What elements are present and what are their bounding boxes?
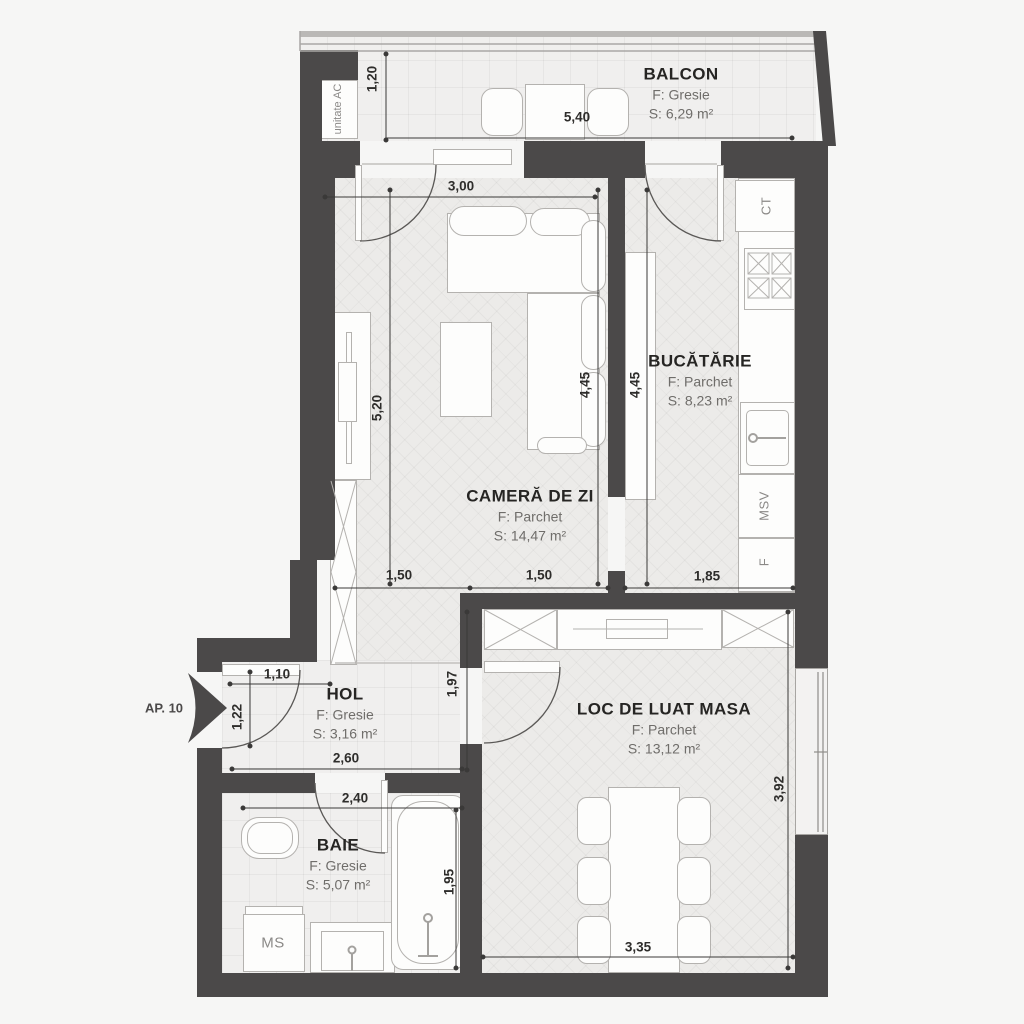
dining-chair xyxy=(677,916,711,964)
wall-hall-top xyxy=(197,638,317,662)
room-name: CAMERĂ DE ZI xyxy=(466,485,594,507)
living-balcony-door-leaf xyxy=(355,165,362,241)
room-label-bucatarie: BUCĂTĂRIE F: Parchet S: 8,23 m² xyxy=(648,350,752,409)
apartment-number-label: AP. 10 xyxy=(145,701,183,716)
room-area: S: 13,12 m² xyxy=(577,739,751,757)
room-floor-type: F: Gresie xyxy=(643,86,718,104)
dining-door-leaf xyxy=(484,661,560,673)
wall-dining-top xyxy=(460,593,828,609)
bath-door-leaf xyxy=(381,780,388,853)
wall-right-upper xyxy=(795,155,828,668)
dining-wardrobe-left xyxy=(484,609,557,650)
room-area: S: 8,23 m² xyxy=(648,391,752,409)
room-label-balcon: BALCON F: Gresie S: 6,29 m² xyxy=(643,63,718,122)
dim-living-width-top: 3,00 xyxy=(448,179,474,194)
dining-window xyxy=(795,668,828,835)
room-floor-type: F: Parchet xyxy=(577,721,751,739)
sofa-end-cushion xyxy=(537,437,587,454)
toilet-inner xyxy=(247,822,293,854)
wall-left-step xyxy=(290,560,317,640)
room-area: S: 14,47 m² xyxy=(466,526,594,544)
wall-balcony-left xyxy=(300,80,322,141)
dim-balcony-width: 5,40 xyxy=(564,110,590,125)
dim-living-height-right: 4,45 xyxy=(578,372,593,398)
wall-entry-jamb-top xyxy=(197,662,222,672)
balcony-chair-left xyxy=(481,88,523,136)
dim-hol-right: 1,97 xyxy=(445,671,460,697)
bath-sink-basin xyxy=(321,931,384,971)
room-name: BAIE xyxy=(306,834,371,856)
dim-bath-side: 1,95 xyxy=(442,869,457,895)
wall-balcony-ac xyxy=(300,50,358,80)
dining-chair xyxy=(677,857,711,905)
dim-kitchen-bottom: 1,85 xyxy=(694,569,720,584)
room-name: BUCĂTĂRIE xyxy=(648,350,752,372)
dim-dining-side: 3,92 xyxy=(772,776,787,802)
room-floor-type: F: Parchet xyxy=(466,508,594,526)
coffee-table xyxy=(440,322,492,417)
kitchen-sink-basin xyxy=(746,410,789,466)
dim-living-height: 5,20 xyxy=(370,395,385,421)
room-floor-type: F: Parchet xyxy=(648,373,752,391)
dim-kitchen-height: 4,45 xyxy=(628,372,643,398)
room-name: LOC DE LUAT MASA xyxy=(577,698,751,720)
room-label-loc-de-luat-masa: LOC DE LUAT MASA F: Parchet S: 13,12 m² xyxy=(577,698,751,757)
balcony-fixed-panel xyxy=(433,149,512,165)
washing-machine-top xyxy=(245,906,303,915)
tv-box xyxy=(338,362,357,422)
wall-right-lower xyxy=(795,835,828,973)
wall-entry-left-lower xyxy=(197,748,222,973)
sofa-side-cushion xyxy=(581,220,606,292)
dining-chair xyxy=(577,857,611,905)
sideboard-box xyxy=(606,619,668,639)
dim-entry-side: 1,22 xyxy=(230,704,245,730)
dining-chair xyxy=(577,916,611,964)
wall-living-kitchen xyxy=(608,178,625,497)
dim-hol-top: 1,10 xyxy=(264,667,290,682)
balcony-slanted-wall xyxy=(813,31,836,146)
dining-chair xyxy=(677,797,711,845)
floor-plan-canvas: BALCON F: Gresie S: 6,29 m² CAMERĂ DE ZI… xyxy=(0,0,1024,1024)
stove-box xyxy=(744,248,795,310)
kitchen-balcony-door-leaf xyxy=(717,165,724,241)
sofa-side-cushion xyxy=(581,295,606,370)
wall-bath-top-right xyxy=(385,773,462,793)
room-label-camera-de-zi: CAMERĂ DE ZI F: Parchet S: 14,47 m² xyxy=(466,485,594,544)
wall-hall-dining-upper xyxy=(460,593,482,668)
dim-living-bottom-a: 1,50 xyxy=(386,568,412,583)
dining-chair xyxy=(577,797,611,845)
washing-machine-label: MS xyxy=(261,935,285,952)
wall-top-middle xyxy=(524,141,645,178)
dim-bath-top: 2,40 xyxy=(342,791,368,806)
room-area: S: 6,29 m² xyxy=(643,104,718,122)
wall-left-living xyxy=(300,141,335,560)
room-label-hol: HOL F: Gresie S: 3,16 m² xyxy=(313,683,378,742)
wall-hall-dining-lower xyxy=(460,744,482,973)
room-floor-type: F: Gresie xyxy=(306,857,371,875)
wall-bath-top-left xyxy=(222,773,315,793)
dining-wardrobe-right xyxy=(722,609,794,648)
freezer-label: F xyxy=(757,558,772,566)
room-name: BALCON xyxy=(643,63,718,85)
room-floor-type: F: Gresie xyxy=(313,706,378,724)
room-name: HOL xyxy=(313,683,378,705)
msv-label: MSV xyxy=(757,491,772,521)
dim-living-bottom-b: 1,50 xyxy=(526,568,552,583)
balcony-chair-right xyxy=(587,88,629,136)
wall-bottom xyxy=(197,973,828,997)
boiler-ct-label: CT xyxy=(759,197,774,215)
room-label-baie: BAIE F: Gresie S: 5,07 m² xyxy=(306,834,371,893)
sofa-back-cushion xyxy=(449,206,527,236)
ac-unit-label: unitate AC xyxy=(332,83,346,135)
dim-hol-bottom: 2,60 xyxy=(333,751,359,766)
room-area: S: 5,07 m² xyxy=(306,875,371,893)
dim-dining-bottom: 3,35 xyxy=(625,940,651,955)
dim-balcony-depth: 1,20 xyxy=(365,66,380,92)
room-area: S: 3,16 m² xyxy=(313,724,378,742)
